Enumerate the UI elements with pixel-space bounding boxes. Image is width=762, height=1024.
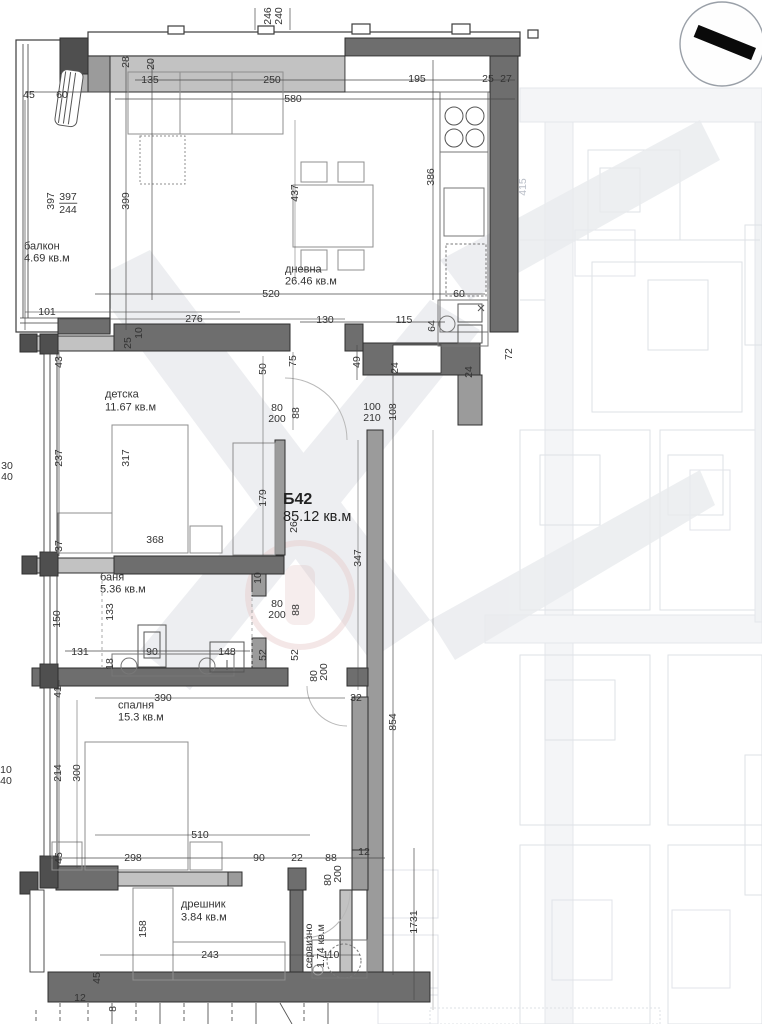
floor-plan-canvas: 2462402028456013525019525275803973972443… bbox=[0, 0, 762, 1024]
floor-plan-drawing bbox=[0, 0, 762, 1024]
watermark bbox=[90, 120, 720, 690]
north-compass-icon bbox=[680, 2, 762, 86]
bottom-hatching bbox=[36, 1003, 328, 1024]
